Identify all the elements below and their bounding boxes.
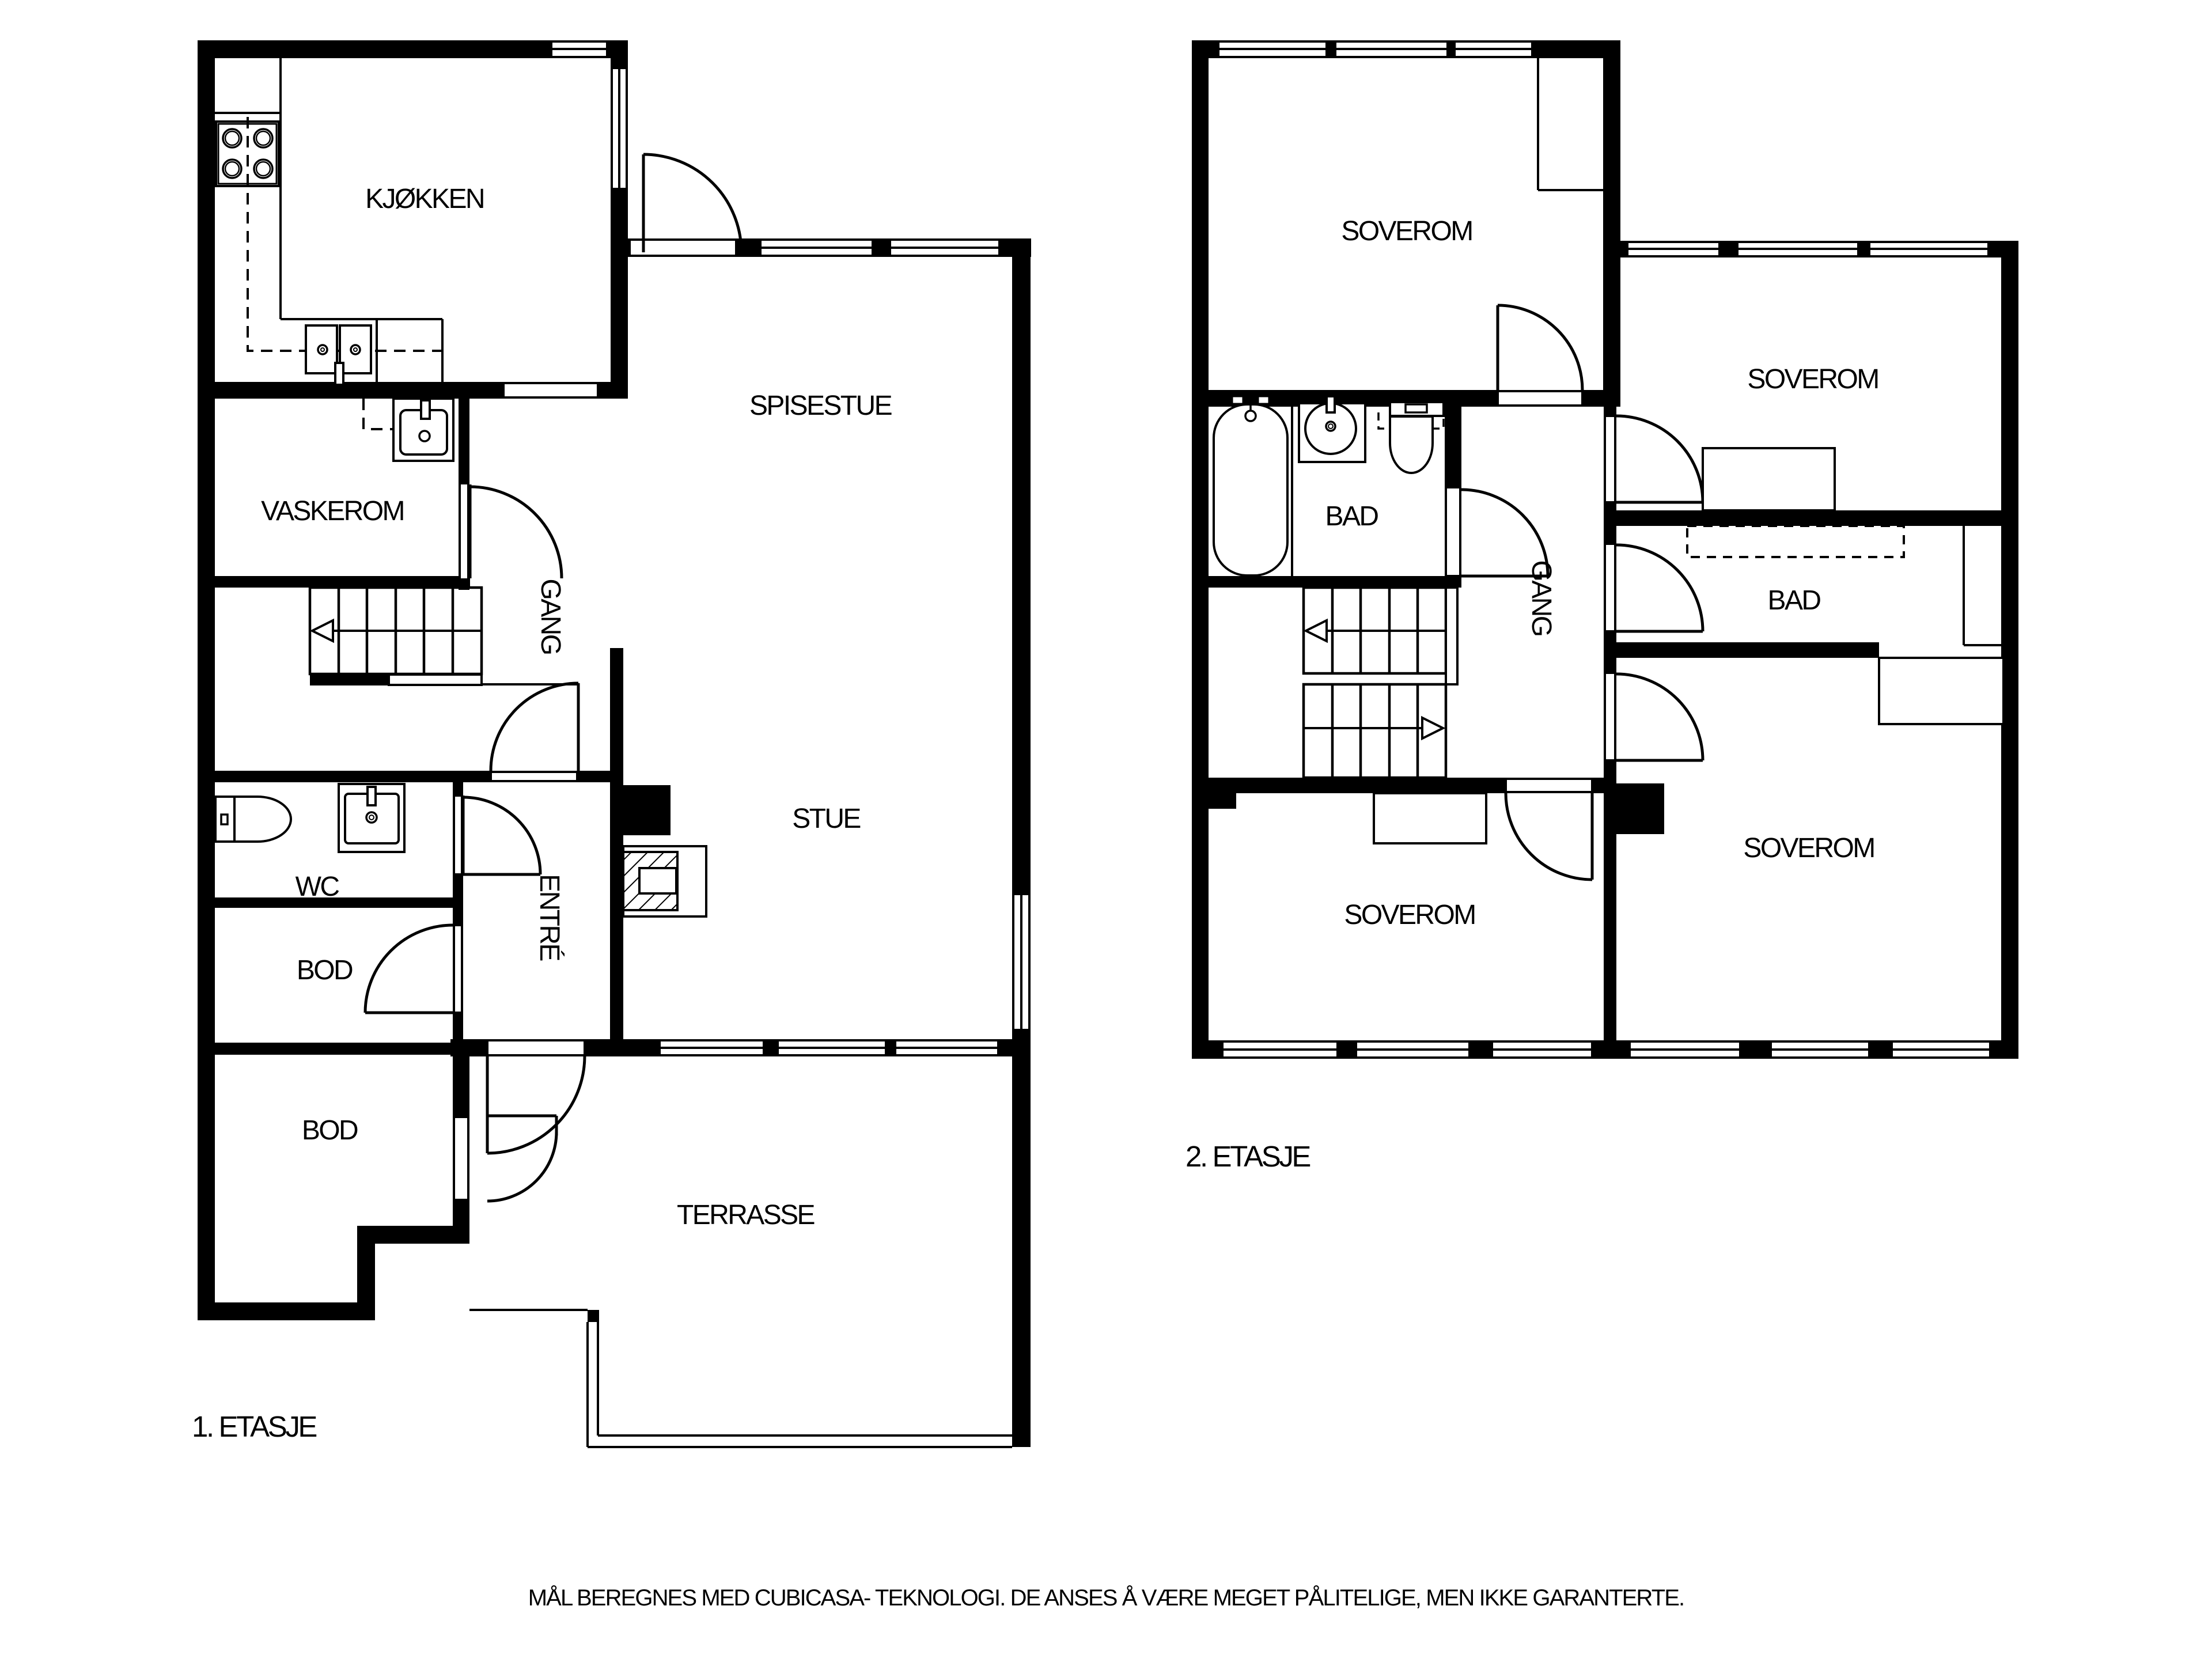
svg-text:SOVEROM: SOVEROM xyxy=(1341,216,1472,247)
svg-text:SPISESTUE: SPISESTUE xyxy=(749,391,892,421)
svg-text:STUE: STUE xyxy=(792,804,860,834)
svg-text:BAD: BAD xyxy=(1768,585,1821,616)
svg-text:2. ETASJE: 2. ETASJE xyxy=(1185,1140,1310,1173)
svg-text:BOD: BOD xyxy=(297,955,353,986)
svg-text:GANG: GANG xyxy=(1526,560,1556,636)
svg-text:SOVEROM: SOVEROM xyxy=(1747,364,1878,395)
svg-text:SOVEROM: SOVEROM xyxy=(1344,900,1475,930)
svg-text:GANG: GANG xyxy=(535,579,566,654)
svg-text:VASKEROM: VASKEROM xyxy=(261,496,404,527)
svg-text:BAD: BAD xyxy=(1325,501,1378,532)
svg-text:MÅL BEREGNES MED CUBICASA- TEK: MÅL BEREGNES MED CUBICASA- TEKNOLOGI. DE… xyxy=(528,1585,1684,1611)
svg-text:KJØKKEN: KJØKKEN xyxy=(365,184,484,214)
svg-text:ENTRÉ: ENTRÉ xyxy=(534,874,565,960)
svg-text:BOD: BOD xyxy=(302,1115,358,1146)
svg-text:SOVEROM: SOVEROM xyxy=(1743,833,1874,863)
svg-text:1. ETASJE: 1. ETASJE xyxy=(192,1410,316,1443)
svg-text:TERRASSE: TERRASSE xyxy=(677,1200,815,1230)
svg-text:WC: WC xyxy=(296,872,339,902)
